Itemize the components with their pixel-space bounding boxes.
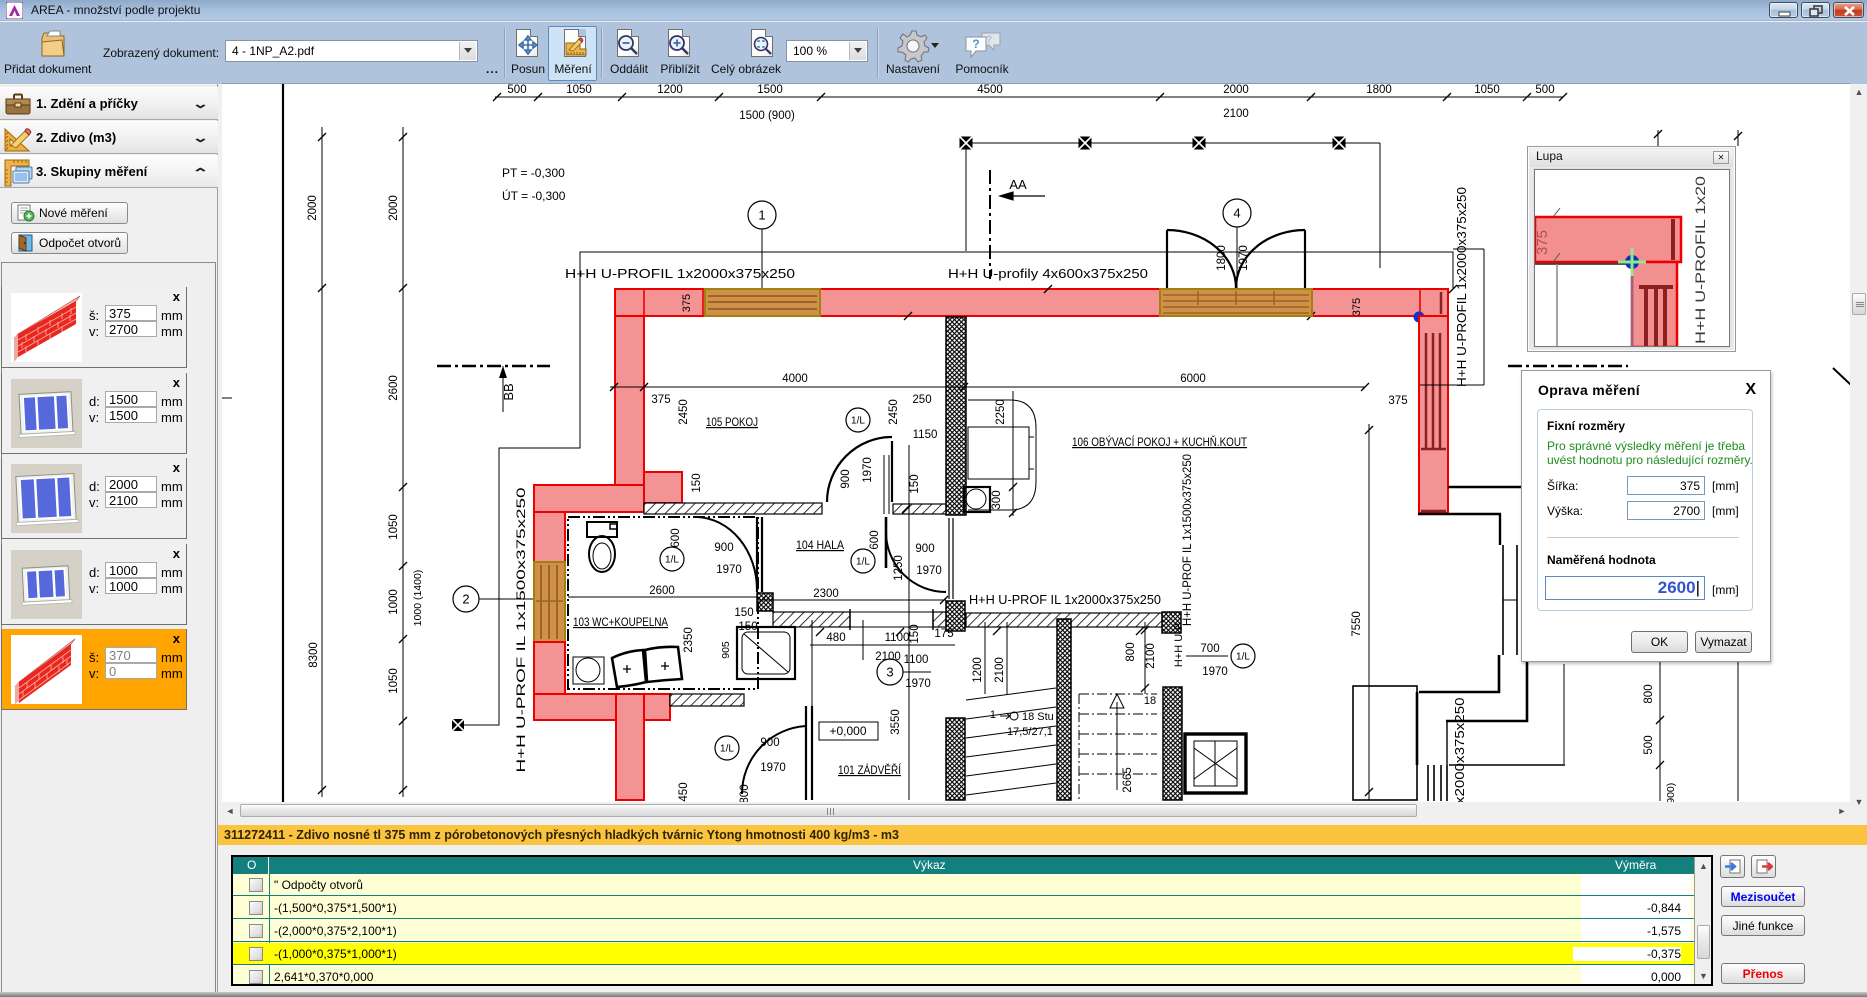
svg-text:900: 900	[840, 469, 852, 488]
svg-text:ÚT = -0,300: ÚT = -0,300	[502, 188, 566, 203]
svg-text:4: 4	[1233, 206, 1240, 221]
svg-text:(900): (900)	[1665, 783, 1677, 802]
svg-text:104 HALA: 104 HALA	[796, 538, 844, 552]
svg-text:2600: 2600	[649, 585, 675, 597]
svg-text:1500: 1500	[757, 84, 783, 96]
svg-text:H+H U-PROF IL 1x1500x375x250: H+H U-PROF IL 1x1500x375x250	[516, 488, 528, 773]
svg-text:700: 700	[1200, 643, 1219, 655]
svg-text:H+H U-P: H+H U-P	[1173, 623, 1185, 667]
svg-text:1200: 1200	[972, 657, 984, 683]
svg-text:8300: 8300	[308, 642, 320, 668]
svg-text:600: 600	[869, 530, 881, 549]
svg-text:1970: 1970	[1202, 666, 1228, 678]
svg-text:1970: 1970	[1238, 245, 1250, 271]
svg-text:3550: 3550	[890, 709, 902, 735]
svg-text:+0,000: +0,000	[829, 724, 866, 738]
svg-text:175: 175	[934, 628, 953, 640]
svg-text:1000: 1000	[388, 589, 400, 615]
svg-text:150: 150	[691, 473, 703, 492]
svg-text:900: 900	[760, 737, 779, 749]
svg-text:375: 375	[681, 294, 693, 312]
svg-text:2100: 2100	[875, 651, 901, 663]
svg-text:18 Stu: 18 Stu	[1022, 711, 1054, 723]
svg-text:480: 480	[826, 632, 845, 644]
svg-text:2350: 2350	[683, 627, 695, 653]
svg-text:800: 800	[1125, 642, 1137, 661]
svg-text:500: 500	[1535, 84, 1554, 96]
svg-text:450: 450	[678, 782, 690, 801]
svg-text:1050: 1050	[388, 668, 400, 694]
svg-text:7550: 7550	[1351, 611, 1363, 637]
svg-text:1200: 1200	[657, 84, 683, 96]
svg-text:1050: 1050	[1474, 84, 1500, 96]
svg-text:600: 600	[670, 528, 682, 547]
svg-text:1970: 1970	[760, 762, 786, 774]
svg-text:1250: 1250	[893, 555, 905, 581]
svg-text:900: 900	[714, 542, 733, 554]
svg-text:?: ?	[986, 34, 993, 46]
svg-text:1: 1	[758, 208, 765, 223]
svg-text:2665: 2665	[1122, 767, 1134, 793]
svg-text:1800: 1800	[1366, 84, 1392, 96]
svg-text:17,5/27,1: 17,5/27,1	[1007, 726, 1053, 738]
svg-text:106 OBÝVACÍ POKOJ + KUCHŇ.KOUT: 106 OBÝVACÍ POKOJ + KUCHŇ.KOUT	[1072, 434, 1248, 449]
svg-text:800: 800	[739, 784, 751, 802]
svg-text:2250: 2250	[995, 399, 1007, 425]
svg-text:2: 2	[462, 592, 469, 607]
svg-text:1100: 1100	[885, 632, 910, 644]
svg-text:1000 (1400): 1000 (1400)	[412, 570, 424, 627]
svg-text:AA: AA	[1009, 177, 1027, 192]
svg-text:1970: 1970	[862, 457, 874, 483]
svg-text:1800: 1800	[1216, 245, 1228, 271]
svg-text:150: 150	[738, 621, 757, 633]
svg-text:250: 250	[912, 394, 931, 406]
svg-text:18: 18	[1144, 695, 1156, 707]
svg-text:2000: 2000	[307, 195, 319, 221]
svg-text:4000: 4000	[782, 373, 808, 385]
svg-text:900: 900	[915, 543, 934, 555]
svg-text:1x2000x375x250: 1x2000x375x250	[1453, 697, 1467, 802]
svg-text:905: 905	[720, 641, 732, 659]
svg-text:1/L: 1/L	[1236, 652, 1250, 663]
svg-text:150: 150	[734, 607, 753, 619]
svg-text:1: 1	[990, 709, 996, 721]
svg-text:375: 375	[1388, 395, 1407, 407]
svg-text:1150: 1150	[913, 429, 938, 441]
svg-text:101 ZÁDVĚŘÍ: 101 ZÁDVĚŘÍ	[838, 764, 902, 777]
svg-text:H+H U-PROF IL 1x2000x375x250: H+H U-PROF IL 1x2000x375x250	[969, 593, 1161, 607]
svg-text:H+H U-PROF IL 1x1500x375x250: H+H U-PROF IL 1x1500x375x250	[1180, 454, 1194, 626]
svg-text:105 POKOJ: 105 POKOJ	[706, 415, 758, 429]
svg-text:2600: 2600	[388, 375, 400, 401]
svg-text:1500 (900): 1500 (900)	[739, 110, 795, 122]
svg-text:1050: 1050	[566, 84, 592, 96]
svg-text:H+H U-profily 4x600x375x250: H+H U-profily 4x600x375x250	[948, 267, 1148, 281]
svg-text:1/L: 1/L	[665, 555, 679, 566]
svg-text:2450: 2450	[888, 399, 900, 425]
svg-text:800: 800	[1643, 684, 1655, 703]
svg-text:2100: 2100	[1145, 643, 1157, 669]
svg-text:1/L: 1/L	[720, 744, 734, 755]
svg-text:H+H U-PROFIL 1x2000x375x250: H+H U-PROFIL 1x2000x375x250	[1455, 187, 1469, 387]
svg-text:375: 375	[651, 394, 670, 406]
svg-text:150: 150	[909, 474, 921, 493]
svg-text:2100: 2100	[994, 657, 1006, 683]
svg-text:1/L: 1/L	[851, 416, 865, 427]
svg-text:1/L: 1/L	[856, 557, 870, 568]
svg-text:H+H U-PROFIL 1x2000x375x250: H+H U-PROFIL 1x2000x375x250	[565, 267, 795, 281]
svg-text:2100: 2100	[1223, 108, 1249, 120]
svg-text:500: 500	[1643, 735, 1655, 754]
svg-text:300: 300	[991, 490, 1003, 509]
svg-text:1970: 1970	[716, 564, 742, 576]
svg-text:2000: 2000	[388, 195, 400, 221]
svg-text:375: 375	[1535, 230, 1551, 255]
svg-text:150: 150	[909, 624, 921, 643]
svg-text:BB: BB	[501, 383, 516, 400]
svg-text:6000: 6000	[1180, 373, 1206, 385]
svg-text:2300: 2300	[813, 588, 839, 600]
svg-text:375: 375	[1351, 298, 1363, 316]
svg-text:500: 500	[507, 84, 526, 96]
svg-text:103 WC+KOUPELNA: 103 WC+KOUPELNA	[573, 617, 668, 629]
svg-text:H+H U-PROFIL 1x20: H+H U-PROFIL 1x20	[1692, 176, 1708, 344]
svg-text:2450: 2450	[678, 399, 690, 425]
svg-text:1100: 1100	[904, 654, 929, 666]
svg-text:1970: 1970	[916, 565, 942, 577]
svg-text:2000: 2000	[1223, 84, 1249, 96]
svg-text:3: 3	[886, 665, 893, 680]
svg-text:?: ?	[972, 37, 979, 51]
svg-text:1050: 1050	[388, 514, 400, 540]
svg-text:4500: 4500	[977, 84, 1003, 96]
svg-text:PT = -0,300: PT = -0,300	[502, 166, 565, 180]
